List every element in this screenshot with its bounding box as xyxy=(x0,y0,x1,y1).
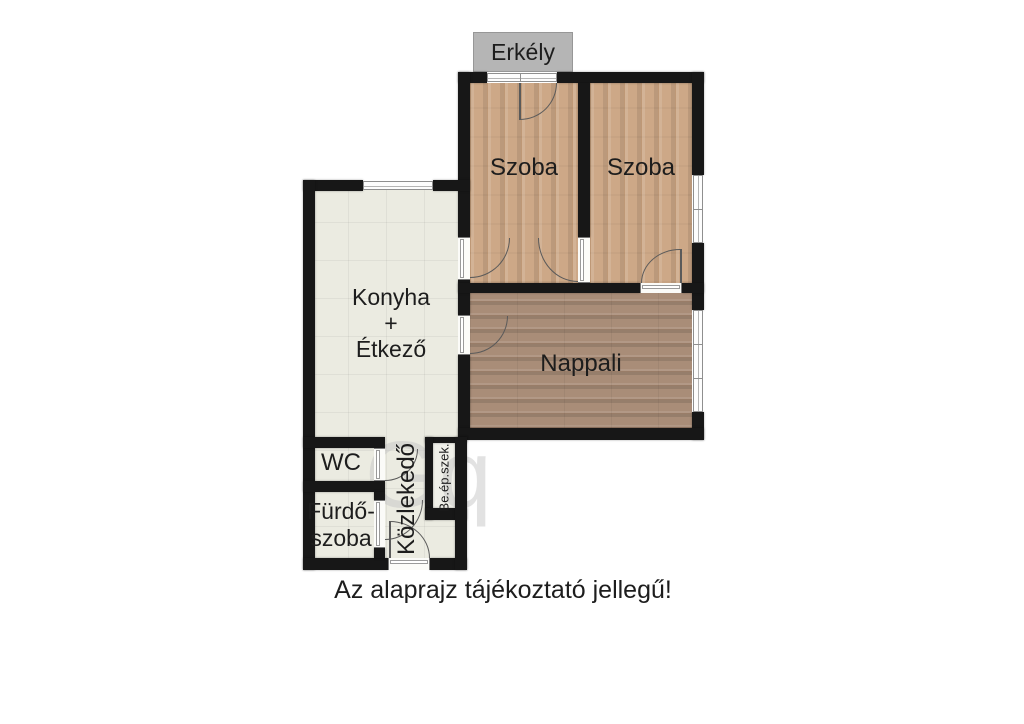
wc-label: WC xyxy=(306,449,376,477)
kitchen-label-line1: Konyha xyxy=(316,284,466,310)
door-opening xyxy=(640,283,682,293)
wall xyxy=(458,283,640,293)
wall xyxy=(458,428,704,440)
bathroom-label: Fürdő- szoba xyxy=(303,498,379,552)
window xyxy=(363,181,433,190)
window xyxy=(693,310,703,412)
window xyxy=(693,175,703,243)
balcony-door-opening xyxy=(487,73,557,82)
living-room-label: Nappali xyxy=(470,350,692,378)
wall xyxy=(455,437,467,570)
door-opening xyxy=(458,237,470,280)
door-opening xyxy=(578,237,590,283)
wall xyxy=(692,243,704,310)
floor-plan: Gq Erkély Szoba Szoba xyxy=(0,0,1024,724)
room-right-label: Szoba xyxy=(590,154,692,182)
wall xyxy=(578,83,590,237)
wall xyxy=(458,355,470,437)
hallway-label: Közlekedő xyxy=(393,419,421,579)
bathroom-label-line2: szoba xyxy=(303,525,379,552)
wall xyxy=(458,72,470,237)
kitchen-label-line3: Étkező xyxy=(316,336,466,362)
wall xyxy=(303,437,385,448)
wall xyxy=(433,180,470,191)
wall xyxy=(557,72,704,83)
kitchen-label-line2: + xyxy=(316,310,466,336)
door-leaf xyxy=(680,249,682,283)
bathroom-label-line1: Fürdő- xyxy=(303,498,379,525)
balcony-label: Erkély xyxy=(473,39,573,66)
room-left-label: Szoba xyxy=(470,154,578,182)
wall xyxy=(303,558,388,570)
kitchen-label: Konyha + Étkező xyxy=(316,284,466,362)
wall xyxy=(692,72,704,175)
wall xyxy=(682,283,704,293)
disclaimer-note: Az alaprajz tájékoztató jellegű! xyxy=(203,576,803,605)
built-in-wardrobe-label: Be.ép.szek. xyxy=(437,443,452,513)
wall xyxy=(303,481,385,492)
